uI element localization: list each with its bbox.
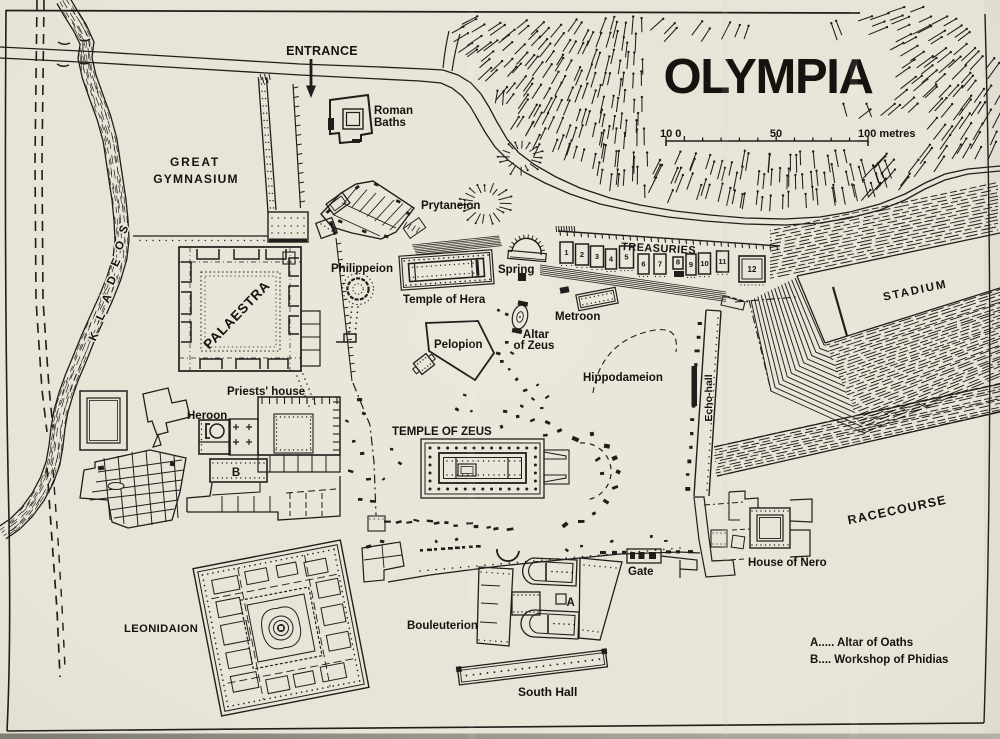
svg-text:7: 7 bbox=[658, 259, 662, 268]
svg-text:Gate: Gate bbox=[628, 566, 654, 578]
svg-text:Baths: Baths bbox=[374, 117, 406, 129]
svg-text:LEONIDAION: LEONIDAION bbox=[124, 623, 198, 635]
svg-text:Echo-hall: Echo-hall bbox=[703, 374, 715, 421]
svg-text:Heroon: Heroon bbox=[187, 410, 227, 422]
svg-text:TEMPLE OF ZEUS: TEMPLE OF ZEUS bbox=[392, 426, 492, 438]
svg-text:Bouleuterion: Bouleuterion bbox=[407, 620, 478, 632]
svg-text:Roman: Roman bbox=[374, 105, 413, 117]
svg-text:House of Nero: House of Nero bbox=[748, 557, 827, 569]
svg-text:ENTRANCE: ENTRANCE bbox=[286, 44, 358, 58]
svg-text:Hippodameion: Hippodameion bbox=[583, 372, 663, 384]
svg-text:South Hall: South Hall bbox=[518, 685, 577, 699]
svg-text:B.... Workshop of Phidias: B.... Workshop of Phidias bbox=[810, 654, 948, 666]
svg-text:10: 10 bbox=[700, 259, 708, 268]
svg-text:9: 9 bbox=[689, 260, 693, 269]
svg-text:6: 6 bbox=[641, 259, 645, 268]
svg-text:8: 8 bbox=[676, 257, 680, 266]
svg-text:GYMNASIUM: GYMNASIUM bbox=[153, 172, 238, 186]
svg-text:Pelopion: Pelopion bbox=[434, 339, 483, 351]
svg-text:Metroon: Metroon bbox=[555, 311, 600, 323]
svg-text:50: 50 bbox=[770, 128, 782, 140]
svg-text:5: 5 bbox=[624, 253, 628, 262]
svg-text:Spring: Spring bbox=[498, 264, 534, 276]
svg-text:B: B bbox=[232, 467, 240, 479]
svg-text:OLYMPIA: OLYMPIA bbox=[664, 50, 874, 104]
svg-text:GREAT: GREAT bbox=[170, 155, 220, 169]
svg-text:12: 12 bbox=[748, 265, 757, 274]
svg-text:Priests' house: Priests' house bbox=[227, 386, 305, 398]
svg-text:3: 3 bbox=[595, 252, 599, 261]
svg-text:10 0: 10 0 bbox=[660, 128, 681, 140]
svg-text:1: 1 bbox=[564, 248, 568, 257]
svg-text:100 metres: 100 metres bbox=[858, 128, 916, 140]
svg-text:A: A bbox=[567, 597, 575, 609]
svg-text:2: 2 bbox=[580, 250, 584, 259]
svg-text:A..... Altar of Oaths: A..... Altar of Oaths bbox=[810, 637, 913, 649]
svg-text:of Zeus: of Zeus bbox=[514, 340, 555, 352]
